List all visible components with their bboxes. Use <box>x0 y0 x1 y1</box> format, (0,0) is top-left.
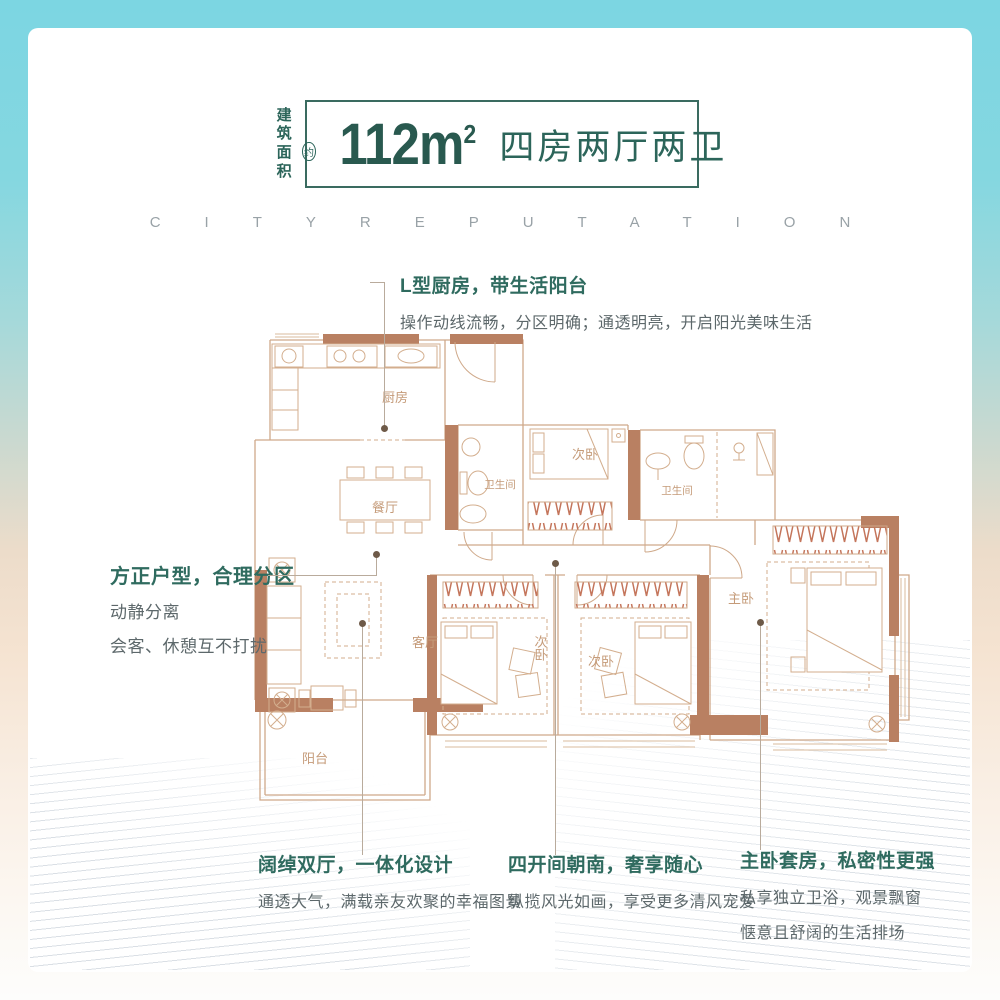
bedroom-mid-left-furniture <box>441 618 547 730</box>
room-label-bath-main: 卫生间 <box>484 478 516 491</box>
room-label-bedroom-top: 次卧 <box>572 447 598 462</box>
layout-text: 四房两厅两卫 <box>499 119 727 170</box>
callout-south-line1: 纵揽风光如画，享受更多清风宠爱 <box>508 888 756 912</box>
leader-line-hall <box>555 563 556 855</box>
room-labels: 厨房 餐厅 卫生间 次卧 卫生间 次卧 次卧 主卧 客厅 阳台 <box>302 390 754 766</box>
room-label-bedroom-mid-right: 次卧 <box>588 654 614 669</box>
callout-kitchen-desc: 操作动线流畅，分区明确；通透明亮，开启阳光美味生活 <box>400 309 813 333</box>
room-label-master: 主卧 <box>728 591 754 606</box>
leader-line-living <box>362 623 363 855</box>
leader-line-kitchen <box>384 283 385 428</box>
leader-dot-kitchen <box>381 425 388 432</box>
floorplan-drawing: 厨房 餐厅 卫生间 次卧 卫生间 次卧 次卧 主卧 客厅 阳台 <box>245 330 925 830</box>
approx-mark: 约 <box>302 142 315 161</box>
callout-south: 四开间朝南，奢享随心 纵揽风光如画，享受更多清风宠爱 <box>508 850 756 912</box>
bath-master-fixtures <box>646 432 773 518</box>
callout-layout: 方正户型，合理分区 动静分离 会客、休憩互不打扰 <box>110 560 295 657</box>
callout-living: 阔绰双厅，一体化设计 通透大气，满载亲友欢聚的幸福图景 <box>258 850 522 912</box>
leader-line-master <box>760 622 761 850</box>
master-furniture <box>767 562 885 732</box>
callout-living-line1: 通透大气，满载亲友欢聚的幸福图景 <box>258 888 522 912</box>
room-label-living: 客厅 <box>412 635 438 650</box>
leader-dot-living <box>359 620 366 627</box>
callout-master: 主卧套房，私密性更强 私享独立卫浴，观景飘窗 惬意且舒阔的生活排场 <box>740 846 935 943</box>
area-label: 建筑 面积 约 <box>277 107 316 182</box>
area-label-text: 建筑 面积 <box>277 107 299 182</box>
room-label-balcony: 阳台 <box>302 751 328 766</box>
watermark-text: CITYREPUTATION <box>0 214 1000 231</box>
room-label-bath-master: 卫生间 <box>661 484 693 497</box>
callout-living-title: 阔绰双厅，一体化设计 <box>258 850 522 877</box>
bedroom-mid-right-furniture <box>581 618 691 730</box>
leader-dot-hall <box>552 560 559 567</box>
balcony-outline <box>260 700 430 800</box>
area-header: 建筑 面积 约 112m2 四房两厅两卫 <box>305 100 699 188</box>
room-label-kitchen: 厨房 <box>382 390 408 405</box>
room-label-dining: 餐厅 <box>372 500 398 515</box>
callout-kitchen-title: L型厨房，带生活阳台 <box>400 271 813 298</box>
room-label-bedroom-mid-left: 次卧 <box>533 634 548 661</box>
leader-line-left <box>268 575 376 576</box>
callout-kitchen: L型厨房，带生活阳台 操作动线流畅，分区明确；通透明亮，开启阳光美味生活 <box>400 271 813 333</box>
callout-layout-line2: 会客、休憩互不打扰 <box>110 632 295 657</box>
callout-layout-title: 方正户型，合理分区 <box>110 560 295 589</box>
callout-layout-line1: 动静分离 <box>110 598 295 623</box>
callout-master-line2: 惬意且舒阔的生活排场 <box>740 919 935 943</box>
callout-master-line1: 私享独立卫浴，观景飘窗 <box>740 884 935 908</box>
leader-dot-master <box>757 619 764 626</box>
flyer-page: 建筑 面积 约 112m2 四房两厅两卫 CITYREPUTATION <box>0 0 1000 1000</box>
kitchen-counter-symbol <box>272 344 440 430</box>
area-value: 112m2 <box>339 111 476 178</box>
callout-master-title: 主卧套房，私密性更强 <box>740 846 935 873</box>
leader-dash-kitchen <box>370 282 385 283</box>
callout-south-title: 四开间朝南，奢享随心 <box>508 850 756 877</box>
leader-dot-left <box>373 551 380 558</box>
